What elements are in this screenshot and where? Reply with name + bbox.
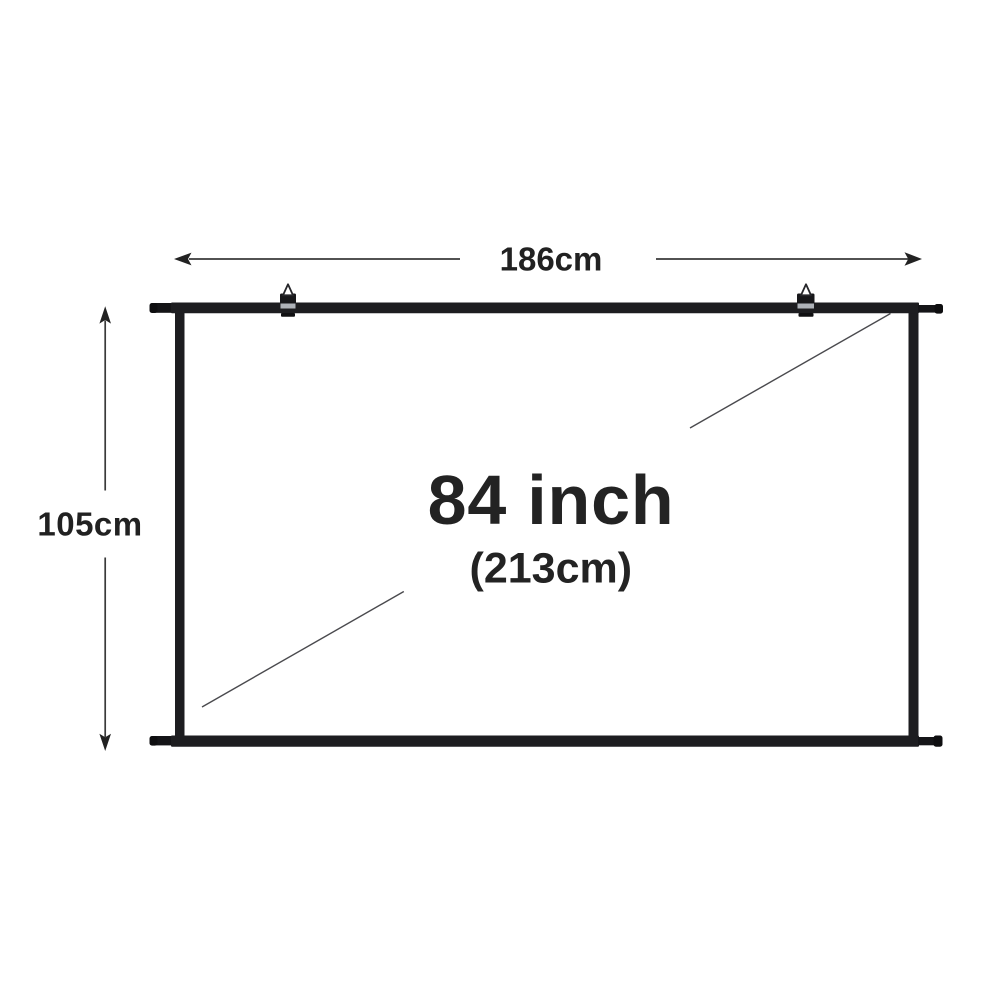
svg-text:(213cm): (213cm): [470, 545, 633, 593]
svg-text:84 inch: 84 inch: [428, 461, 675, 539]
svg-text:105cm: 105cm: [37, 506, 142, 543]
svg-text:186cm: 186cm: [500, 241, 603, 278]
